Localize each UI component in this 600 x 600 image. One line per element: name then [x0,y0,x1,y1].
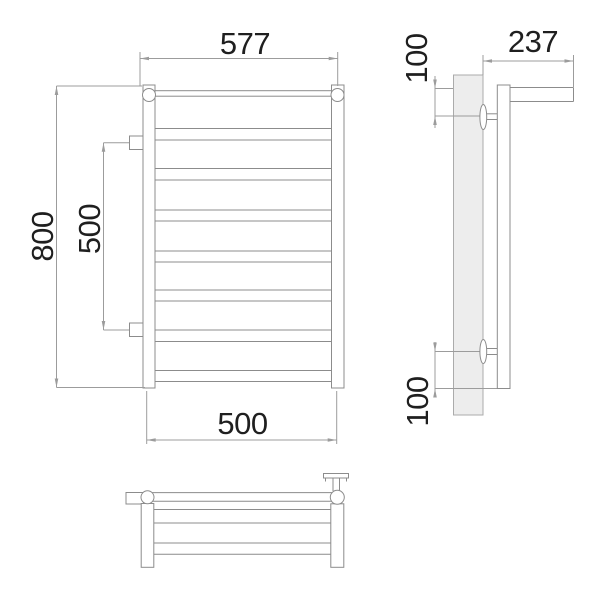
dimension-577: 577 [140,26,338,86]
side-view [435,75,574,415]
bottom-left-post [141,504,154,568]
wall-bracket-top [130,136,144,150]
side-shelf-arm [510,88,574,102]
rung [150,169,337,181]
side-bracket-bottom [480,340,487,364]
dimension-237: 237 [483,24,574,87]
top-shelf-bar [150,91,337,97]
rung [150,371,337,382]
dim-label-500-horizontal: 500 [217,406,267,441]
side-bracket-top [480,105,487,130]
right-post [332,85,345,388]
rungs [150,129,337,382]
technical-drawing-towel-rail: 577 800 500 500 [0,0,600,600]
drawing-svg: 577 800 500 500 [0,0,600,600]
dim-label-237: 237 [508,24,558,59]
bottom-cap-right [330,490,344,504]
front-view [130,85,345,388]
side-post [497,85,510,389]
collector-cap-right [331,89,344,102]
collector-cap-left [143,89,156,102]
bottom-wall-bracket [324,474,349,492]
rung [150,129,337,141]
bottom-tubes [150,493,335,555]
rung [150,330,337,342]
dim-label-800: 800 [25,211,60,261]
dimension-500-vertical: 500 [72,143,129,330]
bottom-view [126,474,349,568]
rung [150,210,337,221]
dim-label-100-bottom: 100 [400,376,435,426]
dim-label-577: 577 [220,26,270,61]
rung [150,290,337,301]
dim-label-100-top: 100 [399,33,434,83]
wall-strip [454,75,484,415]
dimension-100-top: 100 [399,33,437,128]
dimension-500-horizontal: 500 [147,391,337,444]
bottom-right-post [331,504,344,568]
left-post [143,85,155,388]
dim-label-500-vertical: 500 [72,204,107,254]
wall-bracket-bottom [130,323,144,337]
rung [150,251,337,262]
dimension-100-bottom: 100 [400,342,437,427]
bottom-cap-left [141,491,154,504]
